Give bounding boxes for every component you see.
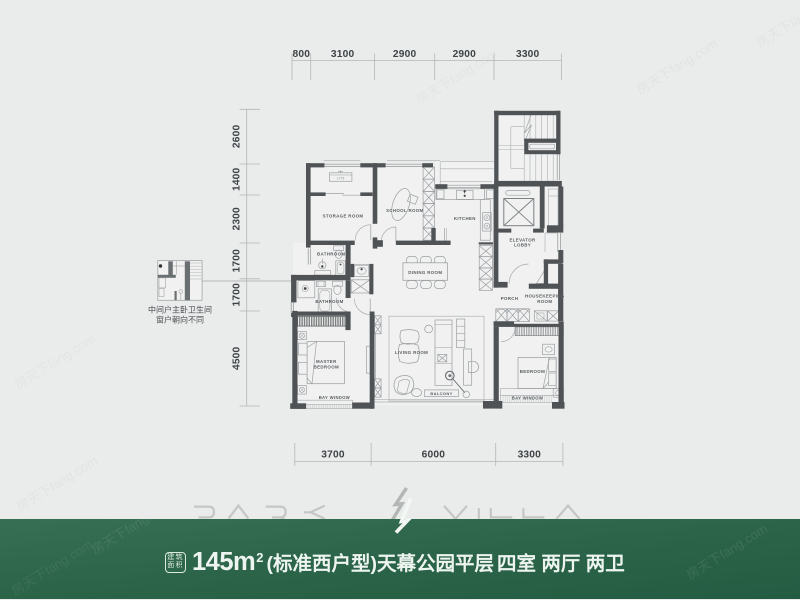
svg-text:房天下fang.com: 房天下fang.com bbox=[9, 537, 95, 599]
svg-text:房天下fang.com: 房天下fang.com bbox=[89, 496, 175, 558]
svg-text:房天下fang.com: 房天下fang.com bbox=[684, 521, 770, 583]
